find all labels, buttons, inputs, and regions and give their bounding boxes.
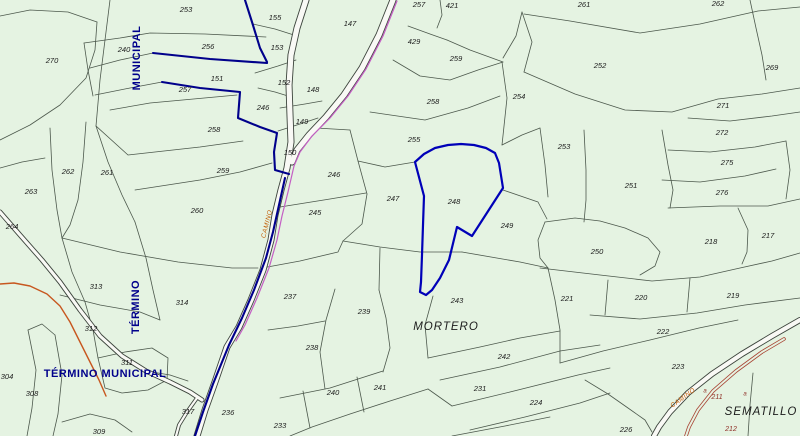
subparcel-label: 211 [710,394,722,401]
parcel-number-label: 260 [190,206,204,215]
parcel-number-label: 147 [344,19,357,28]
parcel-number-label: 150 [284,148,297,157]
parcel-number-label: 314 [176,298,189,307]
parcel-number-label: 304 [1,372,14,381]
parcel-number-label: 151 [211,74,224,83]
parcel-number-label: 249 [500,221,514,230]
parcel-number-label: 248 [447,197,461,206]
parcel-number-label: 252 [593,61,607,70]
parcel-number-label: 223 [671,362,685,371]
parcel-number-label: 251 [624,181,638,190]
subparcel-label: 212 [724,426,737,433]
parcel-number-label: 276 [715,188,729,197]
parcel-number-label: 253 [179,5,193,14]
parcel-number-label: 313 [90,282,103,291]
parcel-number-label: 224 [529,398,543,407]
parcel-number-label: 152 [278,78,291,87]
parcel-number-label: 312 [85,324,98,333]
parcel-number-label: 421 [446,1,459,10]
parcel-number-label: 258 [426,97,440,106]
parcel-number-label: 261 [577,0,591,9]
parcel-number-label: 240 [326,388,340,397]
municipal-boundary-label: MUNICIPAL [131,26,143,91]
parcel-number-label: 259 [449,54,463,63]
parcel-number-label: 263 [24,187,38,196]
parcel-number-label: 257 [412,0,426,9]
parcel-number-label: 239 [357,307,371,316]
parcel-number-label: 153 [271,43,284,52]
parcel-number-label: 241 [373,383,387,392]
parcel-number-label: 264 [5,222,19,231]
place-name-label: MORTERO [413,321,479,333]
parcel-number-label: 237 [283,292,297,301]
parcel-number-label: 309 [93,427,106,436]
parcel-number-label: 254 [512,92,526,101]
parcel-number-label: 149 [296,117,309,126]
parcel-number-label: 236 [221,408,235,417]
parcel-number-label: 253 [557,142,571,151]
parcel-number-label: 155 [269,13,282,22]
parcel-number-label: 218 [704,237,718,246]
parcel-number-label: 262 [61,167,75,176]
parcel-number-label: 255 [407,135,421,144]
municipal-boundary-label: TÉRMINO [129,280,142,334]
parcel-number-label: 308 [26,389,39,398]
parcel-number-label: 250 [590,247,604,256]
cadastral-map-viewport[interactable]: 2531551472574214292592612622702402561531… [0,0,800,436]
parcel-number-label: 242 [497,352,511,361]
parcel-number-label: 221 [560,294,574,303]
place-name-label: SEMATILLO [725,406,798,418]
parcel-number-label: 275 [720,158,734,167]
parcel-number-label: 429 [408,37,421,46]
parcel-number-label: 262 [711,0,725,8]
parcel-number-label: 217 [761,231,775,240]
parcel-number-label: 148 [307,85,320,94]
parcel-number-label: 257 [178,85,192,94]
parcel-number-label: 238 [305,343,319,352]
parcel-number-label: 245 [308,208,322,217]
parcel-number-label: 243 [450,296,464,305]
municipal-boundary-label: TÉRMINO MUNICIPAL [44,367,167,380]
parcel-number-label: 246 [327,170,341,179]
parcel-number-label: 222 [656,327,670,336]
parcel-number-label: 219 [726,291,740,300]
parcel-number-label: 258 [207,125,221,134]
parcel-number-label: 247 [386,194,400,203]
parcel-number-label: 259 [216,166,230,175]
parcel-number-label: 270 [45,56,59,65]
parcel-number-label: 240 [117,45,131,54]
parcel-number-label: 269 [765,63,779,72]
parcel-number-label: 271 [716,101,730,110]
parcel-number-label: 233 [273,421,287,430]
parcel-number-label: 311 [121,358,133,367]
parcel-number-label: 261 [100,168,114,177]
parcel-number-label: 226 [619,425,633,434]
parcel-number-label: 317 [182,407,195,416]
parcel-number-label: 272 [715,128,729,137]
parcel-number-label: 231 [473,384,487,393]
cadastral-map[interactable]: 2531551472574214292592612622702402561531… [0,0,800,436]
parcel-number-label: 246 [256,103,270,112]
parcel-number-label: 220 [634,293,648,302]
parcel-number-label: 256 [201,42,215,51]
